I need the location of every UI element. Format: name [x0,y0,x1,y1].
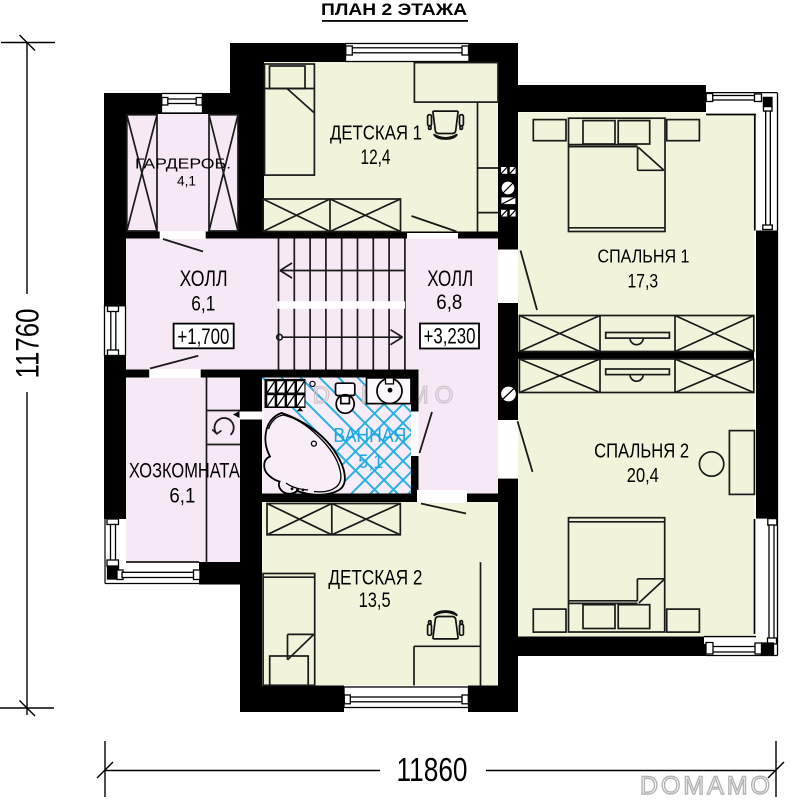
svg-text:ДЕТСКАЯ 1: ДЕТСКАЯ 1 [330,123,422,145]
svg-text:4,1: 4,1 [177,173,196,189]
svg-text:11860: 11860 [397,751,468,788]
svg-text:5,1: 5,1 [358,452,383,473]
svg-text:6,1: 6,1 [169,485,195,508]
svg-text:17,3: 17,3 [628,271,659,292]
svg-text:DOMAMO: DOMAMO [640,772,772,800]
svg-text:ХОЛЛ: ХОЛЛ [180,266,228,291]
svg-text:+3,230: +3,230 [424,324,476,349]
svg-text:12,4: 12,4 [361,146,391,169]
svg-text:ГАРДЕРОБ.: ГАРДЕРОБ. [135,156,231,173]
svg-text:ХОЛЛ: ХОЛЛ [427,266,473,291]
svg-text:11760: 11760 [10,309,46,379]
svg-text:13,5: 13,5 [359,589,391,612]
svg-text:СПАЛЬНЯ 1: СПАЛЬНЯ 1 [598,245,690,266]
svg-text:ПЛАН 2 ЭТАЖА: ПЛАН 2 ЭТАЖА [321,1,467,19]
svg-text:+1,700: +1,700 [177,324,229,349]
svg-text:6,1: 6,1 [191,293,215,316]
svg-text:ВАННАЯ: ВАННАЯ [333,425,406,447]
svg-text:ХОЗКОМНАТА: ХОЗКОМНАТА [129,459,240,482]
svg-text:6,8: 6,8 [436,291,462,314]
svg-text:ДЕТСКАЯ 2: ДЕТСКАЯ 2 [328,566,422,589]
svg-text:20,4: 20,4 [627,464,659,487]
svg-text:СПАЛЬНЯ 2: СПАЛЬНЯ 2 [594,439,689,462]
